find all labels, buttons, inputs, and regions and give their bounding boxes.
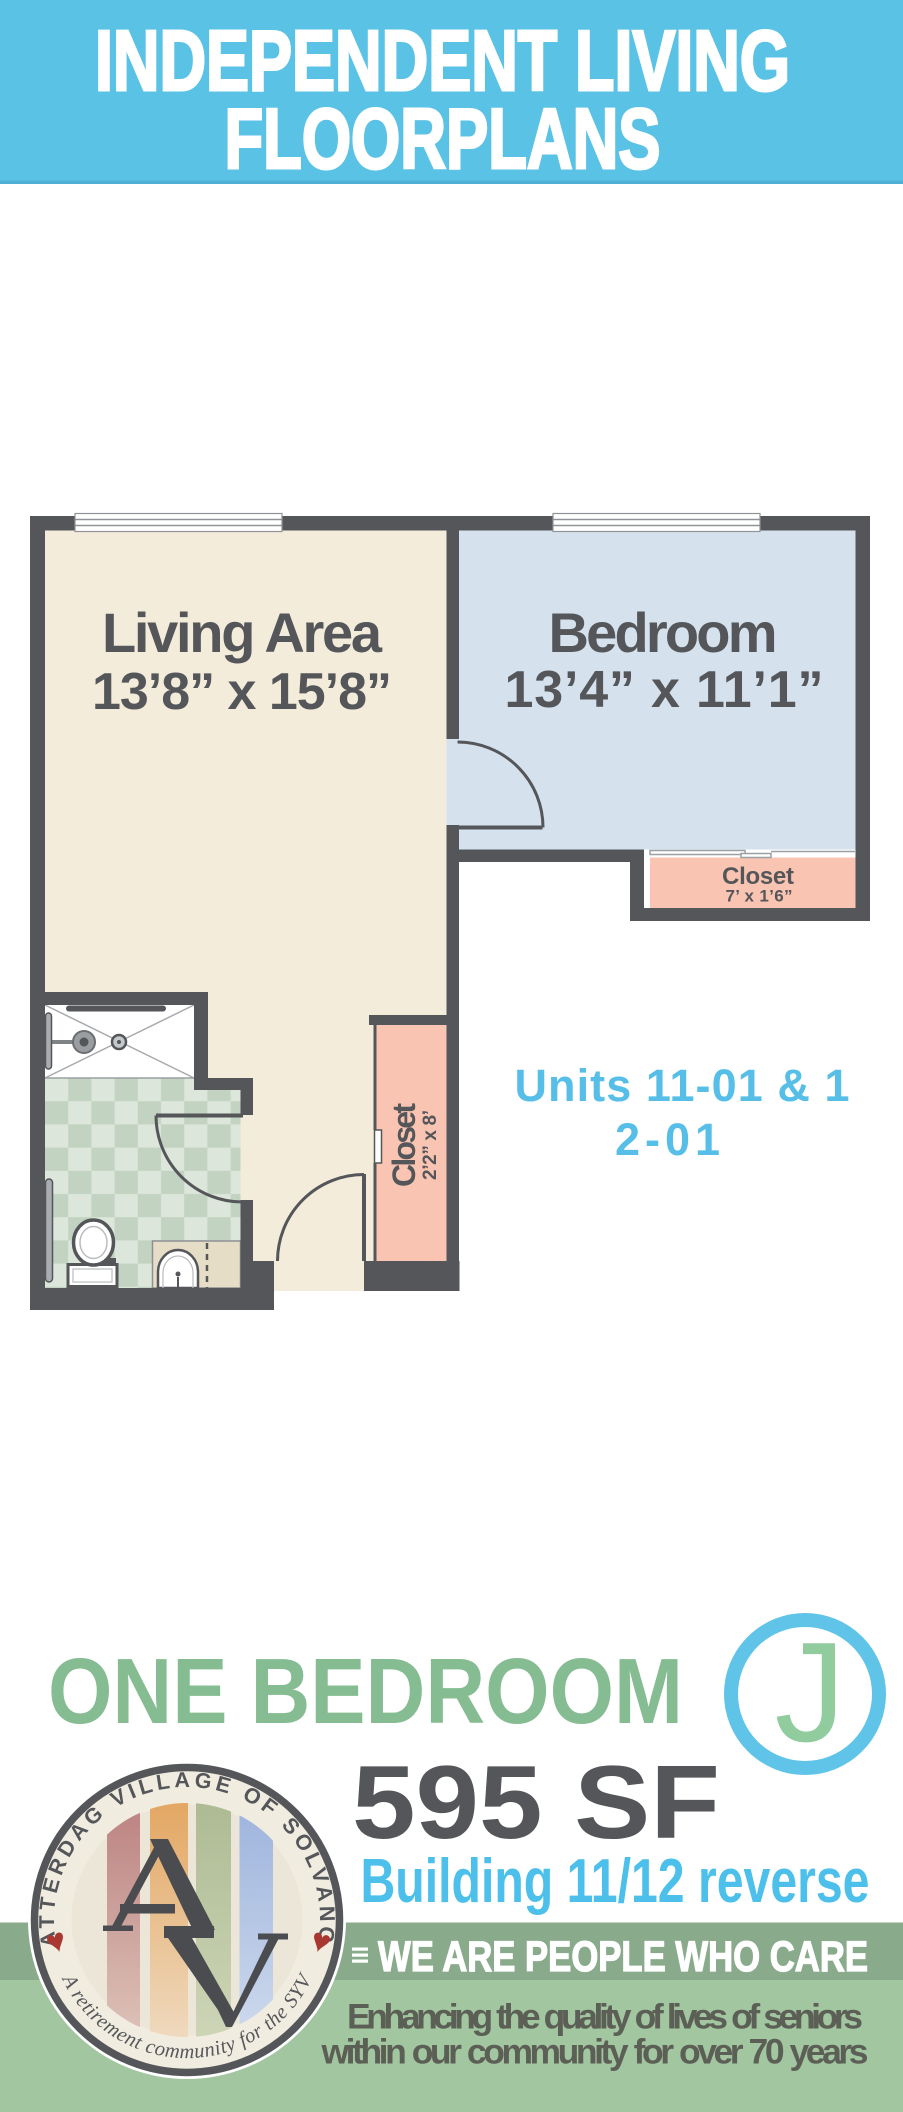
svg-text:13’4” x 11’1”: 13’4” x 11’1” bbox=[505, 661, 824, 719]
svg-text:Living Area: Living Area bbox=[102, 601, 383, 664]
svg-text:J: J bbox=[775, 1613, 846, 1772]
svg-text:Units 11-01 & 1: Units 11-01 & 1 bbox=[515, 1060, 850, 1111]
svg-text:595 SF: 595 SF bbox=[352, 1745, 720, 1861]
svg-text:2-01: 2-01 bbox=[615, 1114, 725, 1165]
svg-text:13’8” x 15’8”: 13’8” x 15’8” bbox=[92, 663, 392, 721]
svg-text:7’ x 1’6”: 7’ x 1’6” bbox=[726, 887, 793, 906]
svg-text:within our community for over: within our community for over 70 years bbox=[321, 2032, 869, 2072]
svg-text:ONE BEDROOM: ONE BEDROOM bbox=[48, 1639, 683, 1743]
svg-text:Bedroom: Bedroom bbox=[549, 601, 778, 664]
svg-text:Closet: Closet bbox=[386, 1103, 422, 1187]
svg-text:FLOORPLANS: FLOORPLANS bbox=[225, 92, 661, 187]
svg-text:WE ARE PEOPLE WHO CARE: WE ARE PEOPLE WHO CARE bbox=[378, 1934, 868, 1981]
svg-text:Building 11/12 reverse: Building 11/12 reverse bbox=[361, 1847, 870, 1916]
svg-text:Enhancing the quality of lives: Enhancing the quality of lives of senior… bbox=[347, 1997, 863, 2037]
svg-text:2’2” x 8’: 2’2” x 8’ bbox=[420, 1110, 441, 1180]
